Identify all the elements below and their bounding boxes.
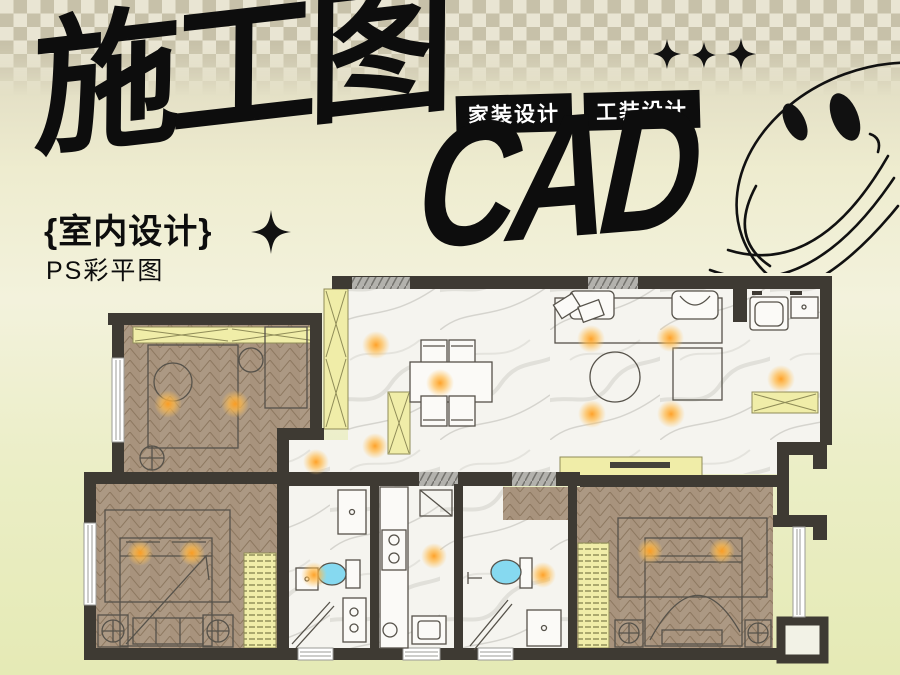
- sparkle-icon: [248, 208, 294, 256]
- toilet-1-tank: [346, 560, 360, 588]
- subtitle-interior-design: {室内设计}: [44, 204, 212, 253]
- kitchen-sink: [412, 616, 446, 644]
- vanity-1: [338, 490, 366, 534]
- cad-title: CAD: [413, 78, 697, 276]
- caption-ps-plan: PS彩平图: [46, 251, 164, 287]
- utility-sink: [791, 297, 818, 318]
- tall-cabinet: [324, 289, 348, 429]
- toilet-2: [491, 560, 521, 584]
- tv-screen: [610, 462, 670, 468]
- master-bedroom-floor: [503, 487, 773, 520]
- sparkle-row-icon: [646, 34, 762, 76]
- vanity-2: [527, 610, 561, 646]
- poster-canvas: { "poster": { "title": "施工图", "cad_text"…: [0, 0, 900, 675]
